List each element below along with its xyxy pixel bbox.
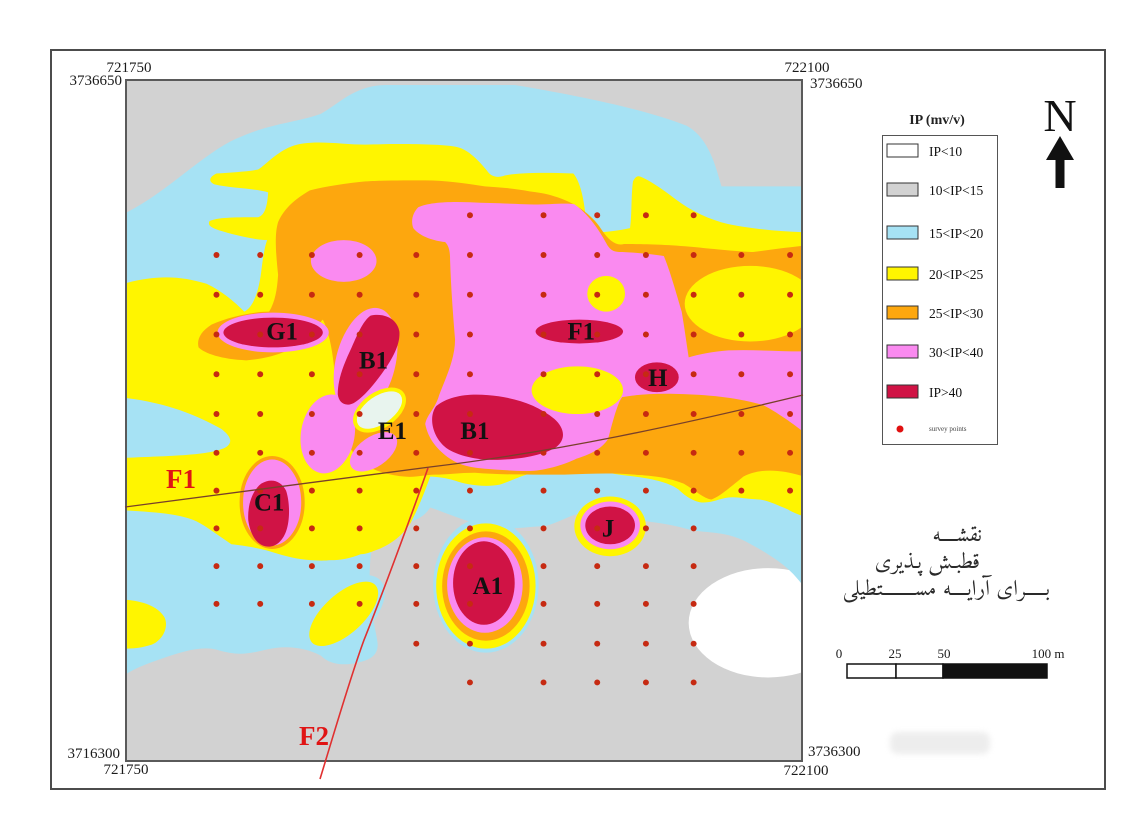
svg-text:25<IP<30: 25<IP<30	[929, 306, 983, 321]
svg-text:IP<10: IP<10	[929, 144, 962, 159]
svg-text:IP>40: IP>40	[929, 385, 962, 400]
svg-text:10<IP<15: 10<IP<15	[929, 183, 983, 198]
svg-text:H: H	[648, 365, 667, 392]
svg-text:20<IP<25: 20<IP<25	[929, 267, 983, 282]
svg-text:A1: A1	[473, 573, 503, 600]
svg-text:C1: C1	[254, 489, 284, 516]
svg-text:30<IP<40: 30<IP<40	[929, 345, 983, 360]
svg-text:F1: F1	[567, 318, 595, 345]
svg-text:B1: B1	[460, 418, 489, 445]
svg-text:survey points: survey points	[929, 425, 967, 433]
svg-text:J: J	[602, 515, 614, 542]
svg-text:15<IP<20: 15<IP<20	[929, 226, 983, 241]
svg-text:G1: G1	[266, 318, 298, 345]
svg-text:B1: B1	[359, 347, 388, 374]
svg-text:E1: E1	[378, 418, 407, 445]
